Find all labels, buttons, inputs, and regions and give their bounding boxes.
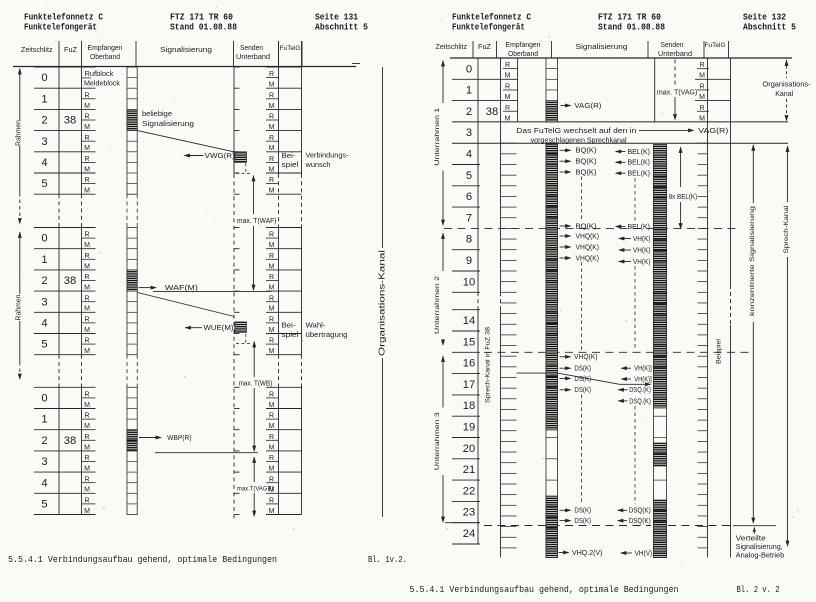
svg-text:M: M <box>84 285 90 292</box>
svg-text:22: 22 <box>463 485 475 497</box>
svg-text:Zeitschlitz: Zeitschlitz <box>21 47 53 54</box>
svg-text:übertragung: übertragung <box>306 330 348 339</box>
svg-text:0: 0 <box>41 72 47 84</box>
svg-text:beliebige: beliebige <box>142 109 172 118</box>
svg-text:Sprech-Kanal in FuZ 38: Sprech-Kanal in FuZ 38 <box>485 327 492 403</box>
svg-text:M: M <box>699 73 705 80</box>
svg-text:BEL(K): BEL(K) <box>628 224 651 231</box>
svg-text:R: R <box>84 392 89 399</box>
svg-text:Bei-: Bei- <box>282 323 297 330</box>
svg-text:VAG(R): VAG(R) <box>574 103 601 110</box>
svg-text:VHQ(K): VHQ(K) <box>576 255 600 262</box>
svg-text:M: M <box>84 327 90 334</box>
svg-text:1: 1 <box>41 254 47 266</box>
svg-text:Wahl-: Wahl- <box>306 321 327 330</box>
svg-text:Signalisierung,: Signalisierung, <box>736 544 783 551</box>
svg-text:M: M <box>269 423 275 430</box>
svg-text:Abschnitt 5: Abschnitt 5 <box>743 23 796 33</box>
svg-text:R: R <box>84 135 89 142</box>
svg-text:R: R <box>269 413 274 420</box>
svg-text:4: 4 <box>41 318 47 330</box>
svg-text:Analog-Betrieb: Analog-Betrieb <box>736 552 785 559</box>
svg-text:M: M <box>269 124 275 131</box>
svg-text:VHQ.2(V): VHQ.2(V) <box>572 550 603 557</box>
svg-text:max. T(VAG): max. T(VAG) <box>657 89 698 96</box>
svg-text:FuTelG: FuTelG <box>705 42 726 49</box>
svg-text:Bl. 1v.2.: Bl. 1v.2. <box>368 554 407 565</box>
svg-text:R: R <box>84 317 89 324</box>
svg-text:R: R <box>84 455 89 462</box>
svg-text:Organisations-: Organisations- <box>763 79 811 88</box>
svg-text:M: M <box>84 444 90 451</box>
svg-text:R: R <box>269 392 274 399</box>
svg-text:M: M <box>269 444 275 451</box>
svg-text:VH(K)]: VH(K)] <box>634 366 652 373</box>
svg-text:M: M <box>699 94 705 101</box>
svg-text:R: R <box>269 71 274 78</box>
svg-text:WBP(R): WBP(R) <box>167 435 192 442</box>
svg-text:R: R <box>699 62 704 69</box>
svg-text:M: M <box>269 348 275 355</box>
svg-text:Unterband: Unterband <box>236 54 270 61</box>
svg-text:R: R <box>269 498 274 505</box>
svg-text:BEL(K): BEL(K) <box>628 160 651 167</box>
svg-text:R: R <box>505 105 510 112</box>
svg-text:BEL(K): BEL(K) <box>628 171 651 178</box>
svg-text:Organisations-Kanal: Organisations-Kanal <box>378 250 387 356</box>
svg-text:Oberband: Oberband <box>508 51 538 58</box>
svg-text:M: M <box>269 402 275 409</box>
svg-text:VH(K): VH(K) <box>633 259 651 266</box>
svg-text:Stand 01.08.88: Stand 01.08.88 <box>598 23 665 33</box>
svg-text:DSQ(K): DSQ(K) <box>629 518 651 525</box>
svg-text:BQ(K): BQ(K) <box>576 169 597 176</box>
svg-text:5: 5 <box>41 499 47 511</box>
svg-text:BQ(K): BQ(K) <box>576 148 597 155</box>
svg-text:3: 3 <box>41 296 47 308</box>
svg-text:R: R <box>269 114 274 121</box>
svg-text:5: 5 <box>41 178 47 190</box>
svg-text:14: 14 <box>463 315 475 327</box>
svg-text:38: 38 <box>486 106 498 118</box>
svg-text:Empfangen: Empfangen <box>506 42 541 49</box>
svg-text:R: R <box>269 177 274 184</box>
svg-text:Signalisierung: Signalisierung <box>576 44 628 51</box>
svg-text:Zeitschlitz: Zeitschlitz <box>436 44 468 51</box>
svg-text:M: M <box>699 115 705 122</box>
svg-text:DS(K): DS(K) <box>574 508 591 515</box>
svg-text:15: 15 <box>463 336 475 348</box>
svg-text:4: 4 <box>41 477 47 489</box>
svg-text:3: 3 <box>41 136 47 148</box>
svg-text:VHQ(K): VHQ(K) <box>574 354 598 361</box>
svg-text:BQ(K): BQ(K) <box>576 159 597 166</box>
svg-text:38: 38 <box>64 115 76 127</box>
svg-text:R: R <box>505 84 510 91</box>
svg-text:R: R <box>269 135 274 142</box>
svg-text:Rahmen: Rahmen <box>15 294 22 320</box>
svg-text:M: M <box>84 306 90 313</box>
svg-text:R: R <box>269 156 274 163</box>
svg-text:DSQ.(K): DSQ.(K) <box>629 387 651 394</box>
svg-text:Verteilte: Verteilte <box>736 536 766 543</box>
svg-text:M: M <box>84 166 90 173</box>
svg-text:M: M <box>84 188 90 195</box>
svg-text:R: R <box>84 498 89 505</box>
svg-text:Signalisierung: Signalisierung <box>142 119 194 128</box>
svg-text:38: 38 <box>64 435 76 447</box>
svg-text:Empfangen: Empfangen <box>88 45 123 52</box>
svg-text:M: M <box>84 466 90 473</box>
svg-text:M: M <box>84 145 90 152</box>
svg-text:9: 9 <box>466 255 472 267</box>
svg-text:M: M <box>269 306 275 313</box>
svg-text:R: R <box>269 274 274 281</box>
svg-text:Bei-: Bei- <box>282 153 297 160</box>
svg-text:Rahmen: Rahmen <box>15 120 22 146</box>
svg-text:R: R <box>84 274 89 281</box>
svg-text:Rufblock: Rufblock <box>85 71 115 78</box>
svg-text:DS(K): DS(K) <box>574 366 591 373</box>
svg-text:Funktelefongerät: Funktelefongerät <box>24 23 97 33</box>
svg-text:max.T(VAGB): max.T(VAGB) <box>237 486 274 493</box>
svg-text:21: 21 <box>463 464 475 476</box>
svg-text:2: 2 <box>41 275 47 287</box>
svg-text:M: M <box>84 508 90 515</box>
svg-text:2: 2 <box>41 115 47 127</box>
svg-text:Signalisierung: Signalisierung <box>160 47 212 54</box>
svg-text:R: R <box>269 317 274 324</box>
svg-text:max. T(WB): max. T(WB) <box>239 381 273 388</box>
svg-text:R: R <box>269 338 274 345</box>
svg-text:Unterrahmen 3: Unterrahmen 3 <box>434 412 441 471</box>
svg-text:max. T(WAF): max. T(WAF) <box>237 218 277 225</box>
svg-text:R: R <box>84 295 89 302</box>
svg-text:R: R <box>84 434 89 441</box>
svg-text:1: 1 <box>41 93 47 105</box>
svg-text:R: R <box>84 156 89 163</box>
svg-text:M: M <box>269 285 275 292</box>
svg-text:3: 3 <box>41 456 47 468</box>
svg-text:Funktelefonnetz C: Funktelefonnetz C <box>24 13 104 23</box>
svg-text:FTZ 171 TR 60: FTZ 171 TR 60 <box>170 13 233 23</box>
svg-text:M: M <box>269 466 275 473</box>
svg-text:18: 18 <box>463 400 475 412</box>
svg-text:DSQ(K): DSQ(K) <box>629 508 651 515</box>
svg-text:Bl. 2 v. 2: Bl. 2 v. 2 <box>737 584 780 595</box>
svg-text:M: M <box>269 145 275 152</box>
svg-text:VHQ(K): VHQ(K) <box>576 233 600 240</box>
svg-text:VH(K): VH(K) <box>633 247 651 254</box>
svg-text:M: M <box>84 348 90 355</box>
svg-text:19: 19 <box>463 421 475 433</box>
svg-text:konzentrierte Signalisierung: konzentrierte Signalisierung <box>749 205 756 316</box>
svg-text:R: R <box>269 232 274 239</box>
svg-text:M: M <box>269 327 275 334</box>
svg-text:spiel: spiel <box>282 162 300 169</box>
svg-text:R: R <box>84 253 89 260</box>
svg-text:R: R <box>269 476 274 483</box>
svg-text:M: M <box>84 423 90 430</box>
svg-text:M: M <box>84 263 90 270</box>
svg-text:vorgeschlagenen Sprechkanal: vorgeschlagenen Sprechkanal <box>531 138 627 145</box>
svg-text:M: M <box>505 73 511 80</box>
svg-text:3: 3 <box>466 127 472 139</box>
svg-text:Stand 01.08.88: Stand 01.08.88 <box>170 23 237 33</box>
svg-text:Funktelefongerät: Funktelefongerät <box>452 23 525 33</box>
svg-text:R: R <box>84 338 89 345</box>
svg-text:M: M <box>84 242 90 249</box>
svg-text:0: 0 <box>466 63 472 75</box>
svg-text:7: 7 <box>466 212 472 224</box>
svg-text:DS(K): DS(K) <box>574 387 591 394</box>
svg-text:M: M <box>84 103 90 110</box>
svg-text:Funktelefonnetz C: Funktelefonnetz C <box>452 13 532 23</box>
svg-text:17: 17 <box>463 379 475 391</box>
svg-text:FuZ: FuZ <box>64 47 78 54</box>
svg-text:R: R <box>84 92 89 99</box>
svg-text:M: M <box>269 263 275 270</box>
svg-text:1: 1 <box>41 414 47 426</box>
svg-text:R: R <box>84 232 89 239</box>
svg-text:VH(K)]: VH(K)] <box>634 376 652 383</box>
svg-text:M: M <box>84 487 90 494</box>
svg-text:spiel: spiel <box>282 332 300 339</box>
svg-text:FuZ: FuZ <box>478 44 492 51</box>
svg-text:5: 5 <box>466 170 472 182</box>
svg-text:R: R <box>269 434 274 441</box>
svg-text:DS(K): DS(K) <box>574 518 591 525</box>
svg-text:Oberband: Oberband <box>90 54 120 61</box>
svg-text:0: 0 <box>41 393 47 405</box>
svg-text:Senden: Senden <box>240 45 263 52</box>
svg-text:8x BEL(K): 8x BEL(K) <box>669 194 698 201</box>
svg-text:8: 8 <box>466 234 472 246</box>
svg-text:VWG(R): VWG(R) <box>205 153 235 160</box>
svg-text:2: 2 <box>466 106 472 118</box>
svg-text:Beispiel: Beispiel <box>716 338 723 364</box>
svg-text:M: M <box>84 124 90 131</box>
svg-text:23: 23 <box>463 507 475 519</box>
svg-text:wunsch: wunsch <box>305 160 331 169</box>
svg-text:Abschnitt 5: Abschnitt 5 <box>315 23 368 33</box>
svg-text:Unterrahmen 2: Unterrahmen 2 <box>434 275 441 334</box>
svg-text:R: R <box>505 62 510 69</box>
svg-text:VH(K): VH(K) <box>633 236 651 243</box>
svg-text:Unterrahmen 1: Unterrahmen 1 <box>434 107 441 166</box>
svg-text:0: 0 <box>41 233 47 245</box>
svg-text:16: 16 <box>463 358 475 370</box>
svg-text:R: R <box>84 177 89 184</box>
svg-text:M: M <box>269 166 275 173</box>
svg-text:BQ(K): BQ(K) <box>576 223 597 230</box>
svg-text:BEL(K): BEL(K) <box>628 149 651 156</box>
svg-text:DSQ.(K): DSQ.(K) <box>629 398 651 405</box>
svg-text:Seite 131: Seite 131 <box>315 13 359 23</box>
svg-text:R: R <box>699 105 704 112</box>
svg-text:R: R <box>269 295 274 302</box>
svg-text:Das FuTelG wechselt auf den in: Das FuTelG wechselt auf den in <box>516 128 636 135</box>
svg-text:Unterband: Unterband <box>658 51 692 58</box>
svg-text:FuTelG: FuTelG <box>280 45 301 52</box>
svg-text:5: 5 <box>41 339 47 351</box>
svg-text:WUE(M): WUE(M) <box>204 325 234 332</box>
svg-text:M: M <box>269 82 275 89</box>
svg-text:M: M <box>269 188 275 195</box>
svg-text:5.5.4.1 Verbindungsaufbau gehe: 5.5.4.1 Verbindungsaufbau gehend, optima… <box>410 584 679 595</box>
svg-text:M: M <box>505 115 511 122</box>
svg-text:Kanal: Kanal <box>775 89 793 98</box>
svg-text:VHQ(K): VHQ(K) <box>576 244 600 251</box>
svg-text:VAG(R): VAG(R) <box>698 128 728 135</box>
svg-text:4: 4 <box>41 157 47 169</box>
svg-text:10: 10 <box>463 276 475 288</box>
svg-text:VH(V): VH(V) <box>635 550 653 557</box>
svg-text:R: R <box>269 455 274 462</box>
svg-text:R: R <box>269 253 274 260</box>
svg-text:Senden: Senden <box>661 42 684 49</box>
svg-text:FTZ 171 TR 60: FTZ 171 TR 60 <box>598 13 661 23</box>
svg-text:M: M <box>505 94 511 101</box>
svg-text:R: R <box>269 92 274 99</box>
svg-text:R: R <box>84 114 89 121</box>
svg-text:R: R <box>84 413 89 420</box>
svg-text:4: 4 <box>466 148 472 160</box>
svg-text:Sprech-Kanal: Sprech-Kanal <box>783 205 790 254</box>
svg-text:Meldeblock: Meldeblock <box>84 80 120 87</box>
svg-text:M: M <box>84 402 90 409</box>
svg-text:R: R <box>699 84 704 91</box>
svg-text:Seite 132: Seite 132 <box>743 13 786 23</box>
svg-text:2: 2 <box>41 435 47 447</box>
svg-text:1: 1 <box>466 85 472 97</box>
svg-text:24: 24 <box>463 528 475 540</box>
svg-text:M: M <box>269 242 275 249</box>
svg-text:6: 6 <box>466 191 472 203</box>
svg-text:20: 20 <box>463 443 475 455</box>
svg-text:5.5.4.1 Verbindungsaufbau gehe: 5.5.4.1 Verbindungsaufbau gehend, optima… <box>8 554 277 565</box>
svg-text:R: R <box>84 476 89 483</box>
svg-text:M: M <box>269 508 275 515</box>
svg-text:M: M <box>269 103 275 110</box>
svg-text:38: 38 <box>64 275 76 287</box>
svg-text:Verbindungs-: Verbindungs- <box>306 150 349 159</box>
